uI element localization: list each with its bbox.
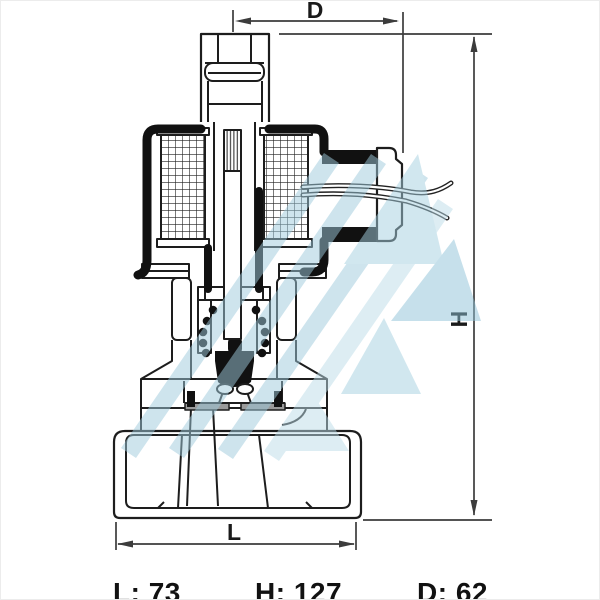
stem-assembly <box>201 34 269 122</box>
spec-height: H: 127 <box>255 577 342 600</box>
spec-length: L: 73 <box>113 577 181 600</box>
dimension-l: L <box>116 519 356 550</box>
product-dimension-diagram: D H L L: 73 H: 127 D: 62 <box>0 0 600 600</box>
valve-technical-drawing: D H L <box>1 1 600 600</box>
spec-diameter: D: 62 <box>417 577 488 600</box>
dimension-label-d: D <box>307 1 324 23</box>
dimension-label-l: L <box>227 519 241 545</box>
